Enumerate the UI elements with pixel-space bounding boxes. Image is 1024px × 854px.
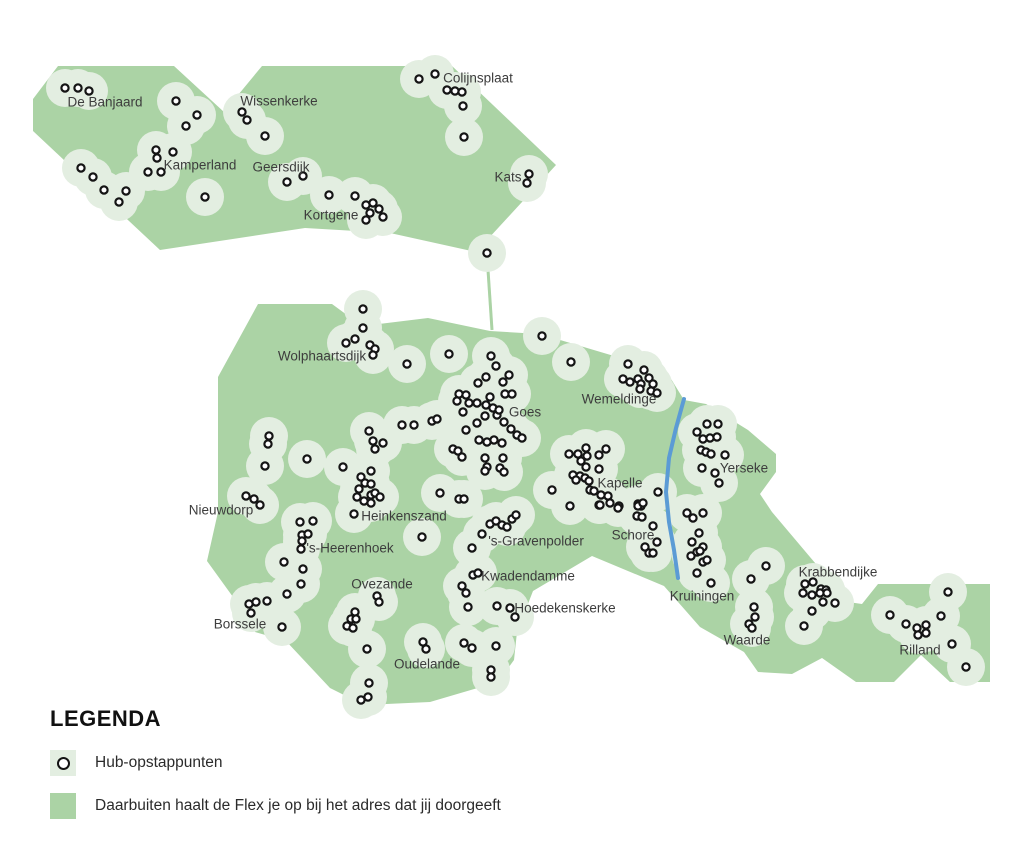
town-label-geersdijk: Geersdijk [252,160,309,175]
hub-stop-dot[interactable] [152,146,159,153]
hub-stop-dot[interactable] [144,168,151,175]
hub-stop-dot[interactable] [948,640,955,647]
legend-item-label: Hub-opstappunten [95,754,223,772]
hub-stop-dot[interactable] [688,538,695,545]
legend-item-flex-area: Daarbuiten haalt de Flex je op bij het a… [50,793,670,819]
hub-stop-dot[interactable] [278,623,285,630]
hub-stop-dot[interactable] [309,517,316,524]
town-label-heinkenszand: Heinkenszand [361,509,447,524]
hub-stop-dot[interactable] [261,462,268,469]
hub-stop-dot[interactable] [169,148,176,155]
hub-stop-dot[interactable] [172,97,179,104]
hub-stop-dot[interactable] [582,463,589,470]
hub-stop-dot[interactable] [369,199,376,206]
hub-stop-dot[interactable] [808,607,815,614]
hub-stop-dot[interactable] [342,339,349,346]
hub-stop-dot[interactable] [351,335,358,342]
hub-stop-dot[interactable] [74,84,81,91]
hub-stop-dot[interactable] [415,75,422,82]
hub-stop-dot[interactable] [962,663,969,670]
hub-stop-dot[interactable] [379,213,386,220]
hub-stop-dot[interactable] [264,440,271,447]
legend-item-label: Daarbuiten haalt de Flex je op bij het a… [95,797,501,815]
hub-stop-dot[interactable] [352,615,359,622]
hub-stop-dot[interactable] [707,450,714,457]
hub-stop-dot[interactable] [481,454,488,461]
hub-stop-dot[interactable] [624,360,631,367]
hub-stop-dot[interactable] [100,186,107,193]
hub-stop-dot[interactable] [922,629,929,636]
hub-stop-dot[interactable] [626,378,633,385]
hub-stop-dot[interactable] [468,644,475,651]
hub-stop-dot[interactable] [193,111,200,118]
hub-stop-dot[interactable] [303,455,310,462]
hub-stop-dot[interactable] [325,191,332,198]
hub-stop-dot[interactable] [707,579,714,586]
hub-stop-dot[interactable] [256,501,263,508]
town-label-goes: Goes [509,405,542,420]
hub-stop-dot[interactable] [201,193,208,200]
hub-stop-dot[interactable] [808,591,815,598]
hub-stop-dot[interactable] [567,358,574,365]
hub-stop-dot[interactable] [263,597,270,604]
hub-stop-dot[interactable] [721,451,728,458]
hub-stop-dot[interactable] [762,562,769,569]
hub-stop-dot[interactable] [460,133,467,140]
hub-stop-dot[interactable] [460,639,467,646]
hub-stop-dot[interactable] [518,434,525,441]
hub-stop-dot[interactable] [359,324,366,331]
hub-stop-dot[interactable] [481,467,488,474]
hub-stop-dot[interactable] [362,216,369,223]
hub-stop-dot[interactable] [115,198,122,205]
hub-stop-dot[interactable] [443,86,450,93]
hub-stop-dot[interactable] [715,479,722,486]
town-label--s-gravenpolder: 's-Gravenpolder [488,534,584,549]
hub-stop-dot[interactable] [595,451,602,458]
hub-stop-dot[interactable] [902,620,909,627]
hub-stop-dot[interactable] [506,604,513,611]
hub-stop-dot[interactable] [422,645,429,652]
hub-stop-dot[interactable] [944,588,951,595]
hub-stop-dot[interactable] [445,350,452,357]
hub-stop-dot[interactable] [713,433,720,440]
flex-area-swatch-icon [50,793,76,819]
hub-stop-dot[interactable] [242,492,249,499]
town-label-nieuwdorp: Nieuwdorp [189,503,254,518]
hub-stop-dot[interactable] [493,602,500,609]
hub-stop-dot[interactable] [367,480,374,487]
hub-stop-dot[interactable] [596,501,603,508]
hub-stop-dot[interactable] [122,187,129,194]
hub-stop-dot[interactable] [367,499,374,506]
hub-stop-dot[interactable] [602,445,609,452]
town-label-hoedekenskerke: Hoedekenskerke [514,601,615,616]
hub-stop-dot[interactable] [410,421,417,428]
hub-stop-dot[interactable] [464,603,471,610]
hub-stop-dot[interactable] [359,305,366,312]
hub-stop-dot[interactable] [369,437,376,444]
hub-stop-dot[interactable] [418,533,425,540]
hub-stop-dot[interactable] [238,108,245,115]
hub-stop-dot[interactable] [252,598,259,605]
hub-stop-dot[interactable] [490,436,497,443]
hub-stop-dot[interactable] [819,598,826,605]
hub-stop-dot[interactable] [714,420,721,427]
town-label-wissenkerke: Wissenkerke [240,94,317,109]
hub-dot-icon [57,757,70,770]
hub-stop-dot[interactable] [403,360,410,367]
hub-stop-dot[interactable] [460,495,467,502]
hub-stop-dot[interactable] [638,513,645,520]
hub-stop-dot[interactable] [458,582,465,589]
hub-stop-dot[interactable] [458,88,465,95]
hub-stop-dot[interactable] [261,132,268,139]
hub-stop-dot[interactable] [597,491,604,498]
hub-stop-dot[interactable] [61,84,68,91]
hub-stop-dot[interactable] [703,556,710,563]
hub-stop-dot[interactable] [747,575,754,582]
hub-stop-dot[interactable] [696,547,703,554]
hub-stop-dot[interactable] [508,390,515,397]
hub-stop-dot[interactable] [823,589,830,596]
hub-stop-dot[interactable] [566,502,573,509]
hub-stop-dot[interactable] [505,371,512,378]
hub-stop-dot[interactable] [499,454,506,461]
hub-stop-dot[interactable] [512,511,519,518]
hub-stop-dot[interactable] [525,170,532,177]
hub-stop-dot[interactable] [711,469,718,476]
hub-stop-dot[interactable] [523,179,530,186]
hub-stop-dot[interactable] [639,499,646,506]
hub-stop-dot[interactable] [582,444,589,451]
hub-stop-dot[interactable] [538,332,545,339]
hub-stop-dot[interactable] [298,537,305,544]
hub-stop-dot[interactable] [478,530,485,537]
town-label-kapelle: Kapelle [597,476,642,491]
hub-stop-dot[interactable] [482,373,489,380]
hub-stop-dot[interactable] [283,590,290,597]
hub-stop-dot[interactable] [297,580,304,587]
hub-stop-dot[interactable] [299,565,306,572]
hub-stop-dot[interactable] [922,621,929,628]
hub-stop-dot[interactable] [698,464,705,471]
hub-stop-swatch-icon [50,750,76,776]
hub-stop-dot[interactable] [89,173,96,180]
hub-stop-dot[interactable] [507,425,514,432]
town-label-krabbendijke: Krabbendijke [799,565,878,580]
hub-stop-dot[interactable] [487,673,494,680]
hub-stop-dot[interactable] [695,529,702,536]
hub-stop-dot[interactable] [751,613,758,620]
town-label-kruiningen: Kruiningen [670,589,735,604]
hub-stop-dot[interactable] [355,485,362,492]
hub-stop-dot[interactable] [693,569,700,576]
town-label-rilland: Rilland [899,643,940,658]
hub-stop-dot[interactable] [182,122,189,129]
town-label-kats: Kats [494,170,521,185]
hub-stop-dot[interactable] [265,432,272,439]
hub-stop-dot[interactable] [750,603,757,610]
hub-stop-dot[interactable] [500,418,507,425]
hub-stop-dot[interactable] [886,611,893,618]
hub-stop-dot[interactable] [376,493,383,500]
hub-stop-dot[interactable] [458,453,465,460]
hub-stop-dot[interactable] [433,415,440,422]
hub-stop-dot[interactable] [595,465,602,472]
hub-stop-dot[interactable] [371,445,378,452]
town-label-colijnsplaat: Colijnsplaat [443,71,513,86]
hub-stop-dot[interactable] [379,439,386,446]
hub-stop-dot[interactable] [473,399,480,406]
hub-stop-dot[interactable] [572,476,579,483]
legend-title: LEGENDA [50,706,670,732]
hub-stop-dot[interactable] [801,580,808,587]
hub-stop-dot[interactable] [453,397,460,404]
hub-stop-dot[interactable] [640,366,647,373]
town-label-yerseke: Yerseke [720,461,768,476]
hub-stop-dot[interactable] [693,428,700,435]
town-label-kortgene: Kortgene [304,208,359,223]
hub-stop-dot[interactable] [800,622,807,629]
hub-stop-dot[interactable] [548,486,555,493]
hub-stop-dot[interactable] [487,352,494,359]
hub-stop-dot[interactable] [799,589,806,596]
hub-stop-dot[interactable] [297,545,304,552]
hub-stop-dot[interactable] [462,391,469,398]
hub-stop-dot[interactable] [486,393,493,400]
hub-stop-dot[interactable] [365,427,372,434]
hub-stop-dot[interactable] [349,624,356,631]
hub-stop-dot[interactable] [654,488,661,495]
hub-stop-dot[interactable] [492,362,499,369]
town-label-de-banjaard: De Banjaard [67,95,142,110]
hub-stop-dot[interactable] [614,504,621,511]
town-label-wemeldinge: Wemeldinge [582,392,657,407]
hub-stop-dot[interactable] [369,351,376,358]
hub-stop-dot[interactable] [363,645,370,652]
hub-stop-dot[interactable] [748,624,755,631]
legend: LEGENDA Hub-opstappunten Daarbuiten haal… [50,706,670,836]
hub-stop-dot[interactable] [350,510,357,517]
hub-stop-dot[interactable] [653,538,660,545]
hub-stop-dot[interactable] [649,549,656,556]
hub-stop-dot[interactable] [398,421,405,428]
hub-stop-dot[interactable] [375,598,382,605]
hub-stop-dot[interactable] [689,514,696,521]
hub-stop-dot[interactable] [831,599,838,606]
hub-stop-dot[interactable] [937,612,944,619]
hub-stop-dot[interactable] [914,631,921,638]
hub-stop-dot[interactable] [495,406,502,413]
hub-stop-dot[interactable] [365,679,372,686]
town-label-schore: Schore [612,528,655,543]
hub-stop-dot[interactable] [475,436,482,443]
hub-stop-dot[interactable] [483,249,490,256]
town-label-waarde: Waarde [724,633,771,648]
hub-stop-dot[interactable] [431,70,438,77]
hub-stop-dot[interactable] [304,530,311,537]
town-label--s-heerenhoek: 's-Heerenhoek [306,541,394,556]
hub-stop-dot[interactable] [77,164,84,171]
hub-stop-dot[interactable] [436,489,443,496]
hub-stop-dot[interactable] [492,642,499,649]
town-label-kwadendamme: Kwadendamme [481,569,575,584]
hub-stop-dot[interactable] [474,379,481,386]
hub-stop-dot[interactable] [565,450,572,457]
town-label-borssele: Borssele [214,617,267,632]
hub-stop-dot[interactable] [153,154,160,161]
hub-stop-dot[interactable] [481,412,488,419]
hub-stop-dot[interactable] [459,408,466,415]
hub-stop-dot[interactable] [367,467,374,474]
hub-stop-dot[interactable] [353,493,360,500]
hub-stop-dot[interactable] [462,589,469,596]
town-label-wolphaartsdijk: Wolphaartsdijk [278,349,367,364]
hub-stop-dot[interactable] [280,558,287,565]
hub-stop-dot[interactable] [473,419,480,426]
town-label-oudelande: Oudelande [394,657,460,672]
hub-stop-dot[interactable] [243,116,250,123]
hub-stop-dot[interactable] [375,205,382,212]
hub-stop-dot[interactable] [503,523,510,530]
hub-stop-dot[interactable] [585,477,592,484]
hub-stop-dot[interactable] [498,439,505,446]
hub-stop-dot[interactable] [459,102,466,109]
hub-stop-dot[interactable] [366,209,373,216]
hub-stop-dot[interactable] [699,509,706,516]
hub-stop-dot[interactable] [500,468,507,475]
hub-stop-dot[interactable] [462,426,469,433]
town-label-ovezande: Ovezande [351,577,413,592]
hub-stop-dot[interactable] [296,518,303,525]
hub-stop-dot[interactable] [283,178,290,185]
hub-stop-dot[interactable] [703,420,710,427]
hub-stop-dot[interactable] [364,693,371,700]
town-label-kamperland: Kamperland [164,158,237,173]
legend-item-hub-stops: Hub-opstappunten [50,750,670,776]
hub-stop-dot[interactable] [465,399,472,406]
hub-stop-dot[interactable] [351,192,358,199]
hub-stop-dot[interactable] [499,378,506,385]
hub-stop-dot[interactable] [468,544,475,551]
hub-stop-dot[interactable] [339,463,346,470]
